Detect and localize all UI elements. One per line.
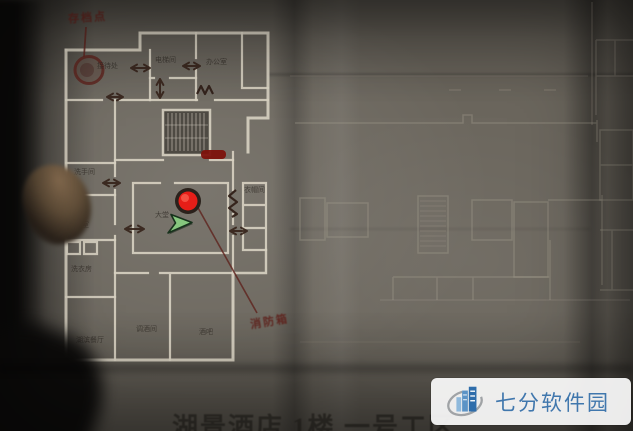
stairs-icon [163,110,210,155]
room-label: 衣帽间 [244,185,265,195]
room-label: 酒吧 [199,327,213,337]
room-label: 洗衣房 [71,264,92,274]
room-label: 调酒间 [136,324,157,334]
stairs-icon-faint [418,196,448,253]
paper-crease [0,364,633,373]
watermark-text: 七分软件园 [495,387,610,417]
map-title: 湖景酒店 1楼 一号工区 [172,407,456,431]
watermark-badge: 七分软件园 [431,378,631,425]
green-arrow-icon [168,215,193,235]
room-label: 办公室 [206,57,227,67]
room-label: 大堂 [155,210,169,220]
room-label: 电梯间 [155,55,176,65]
red-annotation-save-spot: 存档点 [67,8,107,27]
red-bar-mark [201,150,226,159]
buildings-logo-icon [444,382,486,422]
room-label: 接待处 [97,61,118,71]
game-screen: 接待处电梯间办公室洗手间储藏室大堂衣帽间洗衣房湖滨餐厅调酒间酒吧 存档点 消防箱… [0,0,633,431]
red-dot-icon [175,188,201,214]
annotation-leader-line [84,27,86,57]
red-circle-annotation [75,27,103,84]
unexplored-floor-plan [290,2,633,342]
